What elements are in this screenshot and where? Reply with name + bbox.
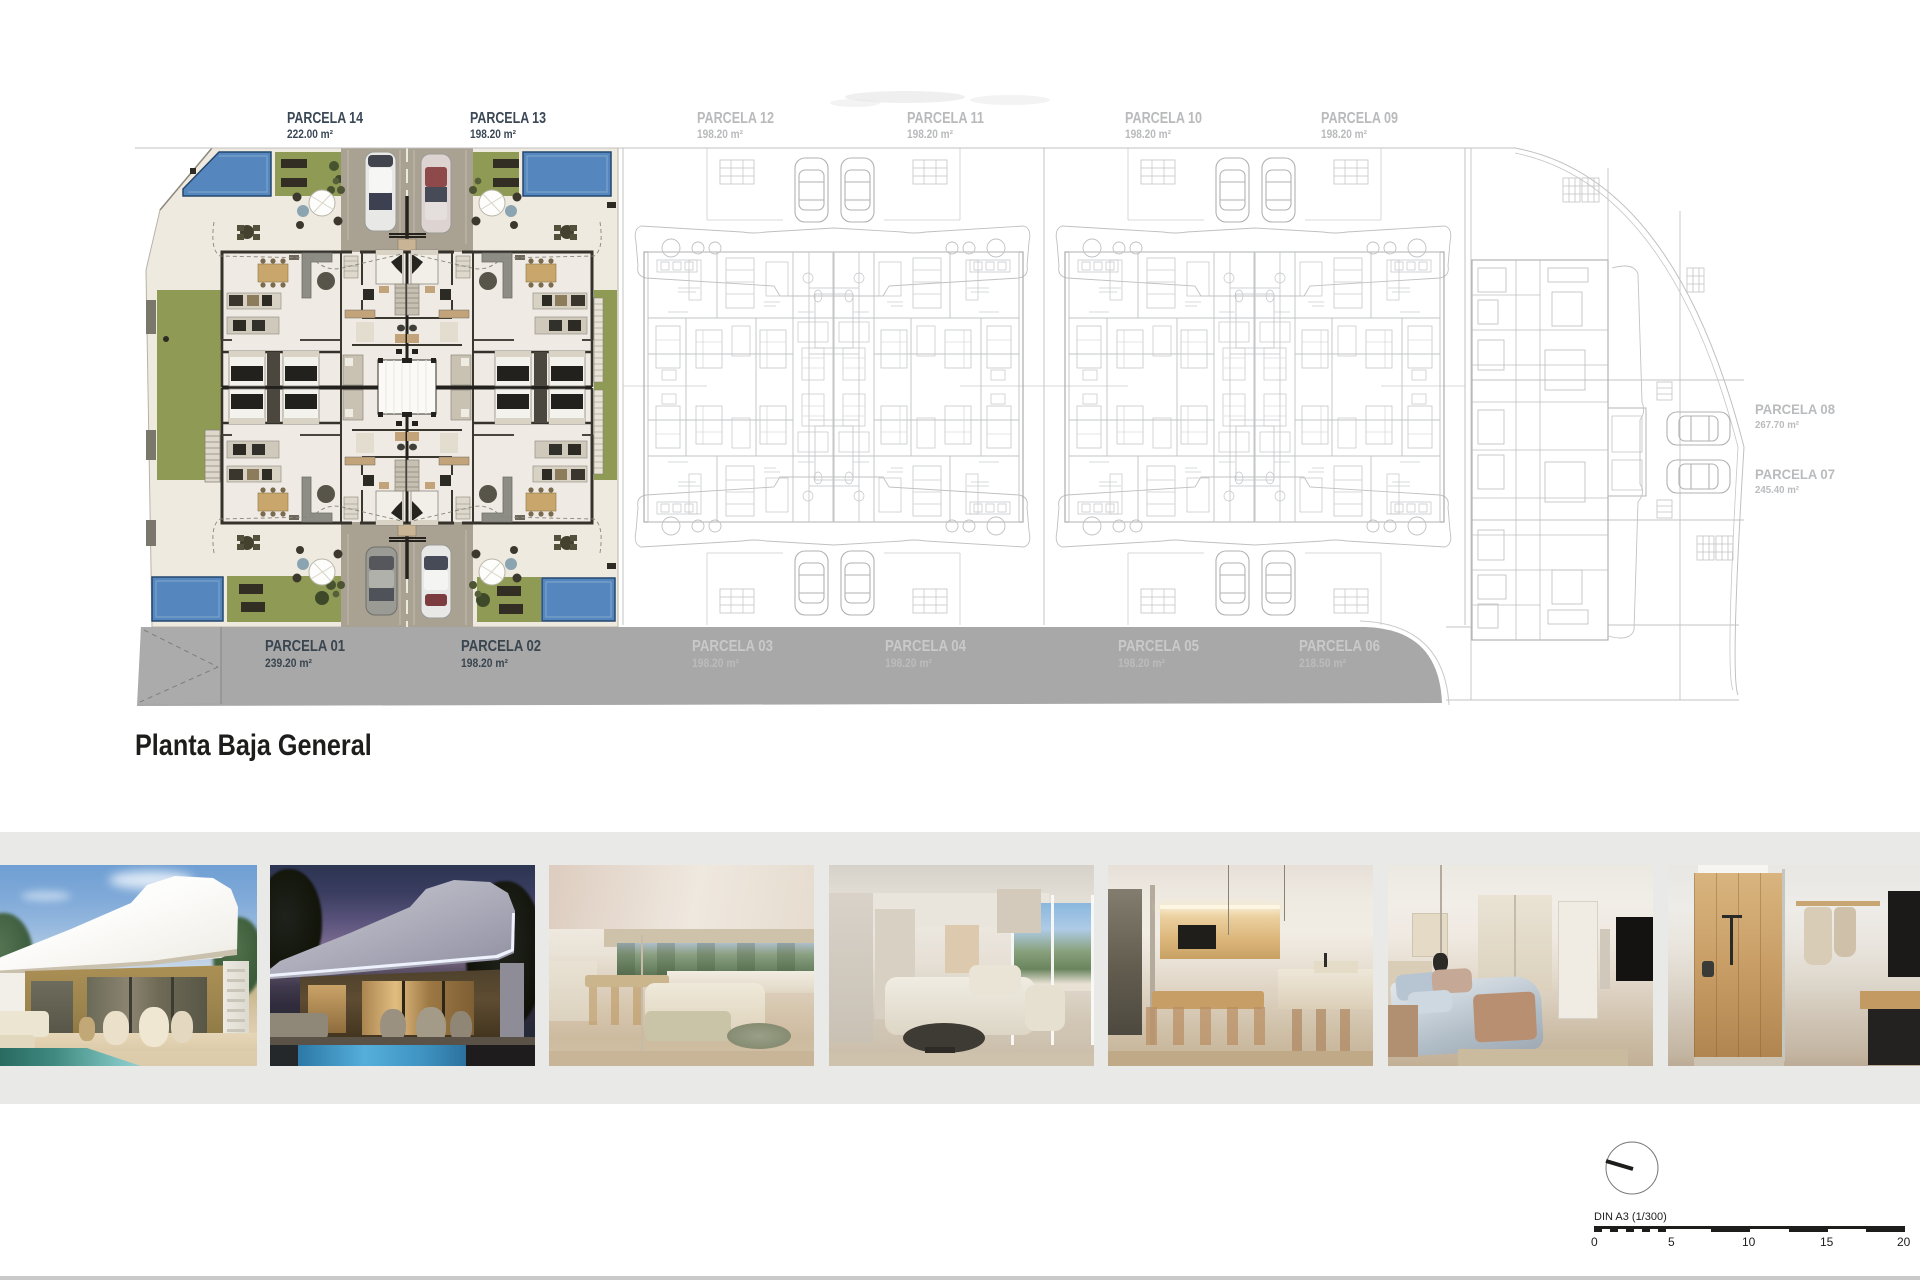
svg-text:222.00 m²: 222.00 m² — [287, 129, 333, 141]
svg-text:PARCELA 06: PARCELA 06 — [1299, 638, 1380, 655]
svg-text:20: 20 — [1897, 1235, 1911, 1249]
svg-text:198.20 m²: 198.20 m² — [1118, 658, 1165, 670]
svg-text:267.70 m²: 267.70 m² — [1755, 419, 1799, 431]
svg-text:PARCELA 01: PARCELA 01 — [265, 638, 345, 655]
svg-text:198.20 m²: 198.20 m² — [697, 129, 743, 141]
svg-text:198.20 m²: 198.20 m² — [692, 658, 739, 670]
svg-text:10: 10 — [1742, 1235, 1756, 1249]
svg-text:198.20 m²: 198.20 m² — [907, 129, 953, 141]
svg-text:PARCELA 02: PARCELA 02 — [461, 638, 541, 655]
svg-text:15: 15 — [1820, 1235, 1834, 1249]
svg-text:PARCELA 05: PARCELA 05 — [1118, 638, 1199, 655]
svg-text:PARCELA 11: PARCELA 11 — [907, 110, 984, 127]
svg-text:PARCELA 12: PARCELA 12 — [697, 110, 774, 127]
svg-text:DIN A3 (1/300): DIN A3 (1/300) — [1594, 1211, 1667, 1223]
svg-text:245.40 m²: 245.40 m² — [1755, 484, 1799, 496]
svg-text:198.20 m²: 198.20 m² — [461, 658, 508, 670]
svg-text:0: 0 — [1591, 1235, 1598, 1249]
svg-text:PARCELA 07: PARCELA 07 — [1755, 466, 1835, 482]
svg-text:198.20 m²: 198.20 m² — [1321, 129, 1367, 141]
svg-text:PARCELA 04: PARCELA 04 — [885, 638, 966, 655]
svg-text:198.20 m²: 198.20 m² — [1125, 129, 1171, 141]
svg-text:PARCELA 03: PARCELA 03 — [692, 638, 773, 655]
svg-text:198.20 m²: 198.20 m² — [470, 129, 516, 141]
svg-text:PARCELA 14: PARCELA 14 — [287, 110, 363, 127]
svg-text:PARCELA 13: PARCELA 13 — [470, 110, 546, 127]
svg-text:198.20 m²: 198.20 m² — [885, 658, 932, 670]
svg-text:218.50 m²: 218.50 m² — [1299, 658, 1346, 670]
svg-text:5: 5 — [1668, 1235, 1675, 1249]
svg-text:PARCELA 08: PARCELA 08 — [1755, 401, 1835, 417]
svg-text:PARCELA 10: PARCELA 10 — [1125, 110, 1202, 127]
svg-text:PARCELA 09: PARCELA 09 — [1321, 110, 1398, 127]
svg-text:239.20 m²: 239.20 m² — [265, 658, 312, 670]
